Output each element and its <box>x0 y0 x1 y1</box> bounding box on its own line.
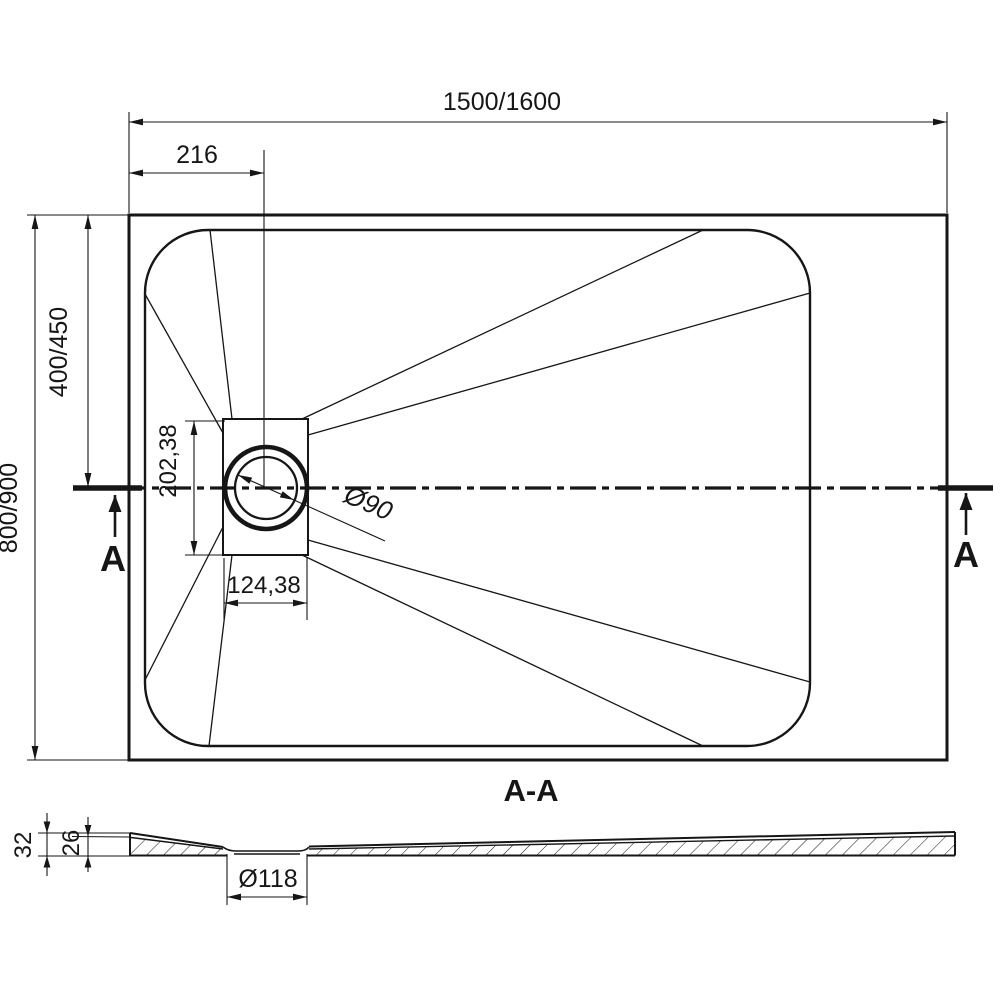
recess-length-label: 202,38 <box>155 424 182 497</box>
edge-height-label: 32 <box>10 832 37 859</box>
drawing-svg: 1500/1600 216 400/450 800/900 202,38 124… <box>0 0 1000 1000</box>
recess-width-label: 124,38 <box>227 572 300 599</box>
shower-tray-technical-drawing: 1500/1600 216 400/450 800/900 202,38 124… <box>0 0 1000 1000</box>
cut-label-right: A <box>953 534 979 575</box>
dim-overall-width <box>129 112 947 213</box>
drain-offset-label: 216 <box>176 141 218 169</box>
labels: 1500/1600 216 400/450 800/900 202,38 124… <box>0 88 979 893</box>
section-cut-marker-left <box>73 488 142 537</box>
hole-diameter-label: Ø118 <box>238 865 297 893</box>
section-hatch <box>131 837 954 856</box>
section-view <box>38 813 955 905</box>
dim-drain-center-depth <box>27 215 129 487</box>
drain-diameter-label: Ø90 <box>339 479 397 526</box>
overall-width-label: 1500/1600 <box>443 88 561 116</box>
overall-depth-label: 800/900 <box>0 463 23 553</box>
drain-center-depth-label: 400/450 <box>45 307 73 397</box>
cut-label-left: A <box>100 538 126 579</box>
inner-height-label: 26 <box>58 830 85 857</box>
dim-drain-offset <box>129 150 264 488</box>
section-title: A-A <box>503 773 558 808</box>
